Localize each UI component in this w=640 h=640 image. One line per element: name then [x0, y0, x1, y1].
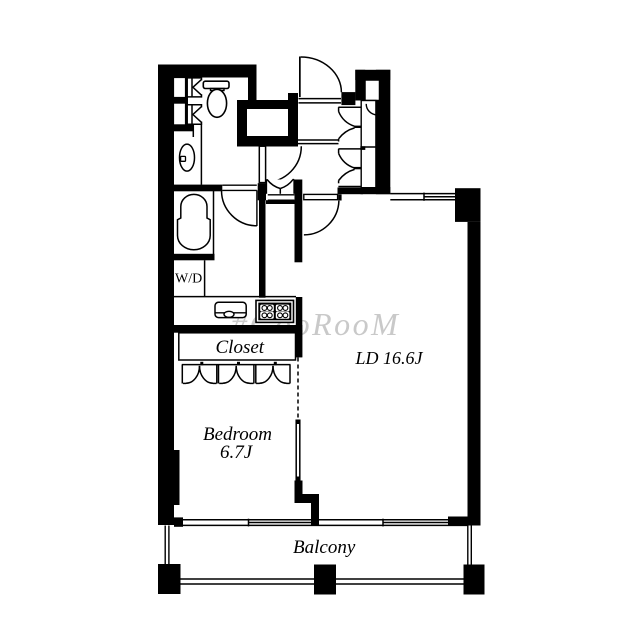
svg-text:W/D: W/D	[175, 272, 202, 287]
svg-text:Balcony: Balcony	[293, 537, 356, 558]
svg-text:Closet: Closet	[216, 337, 265, 358]
svg-text:LD 16.6J: LD 16.6J	[355, 348, 424, 368]
svg-text:6.7J: 6.7J	[220, 442, 254, 463]
